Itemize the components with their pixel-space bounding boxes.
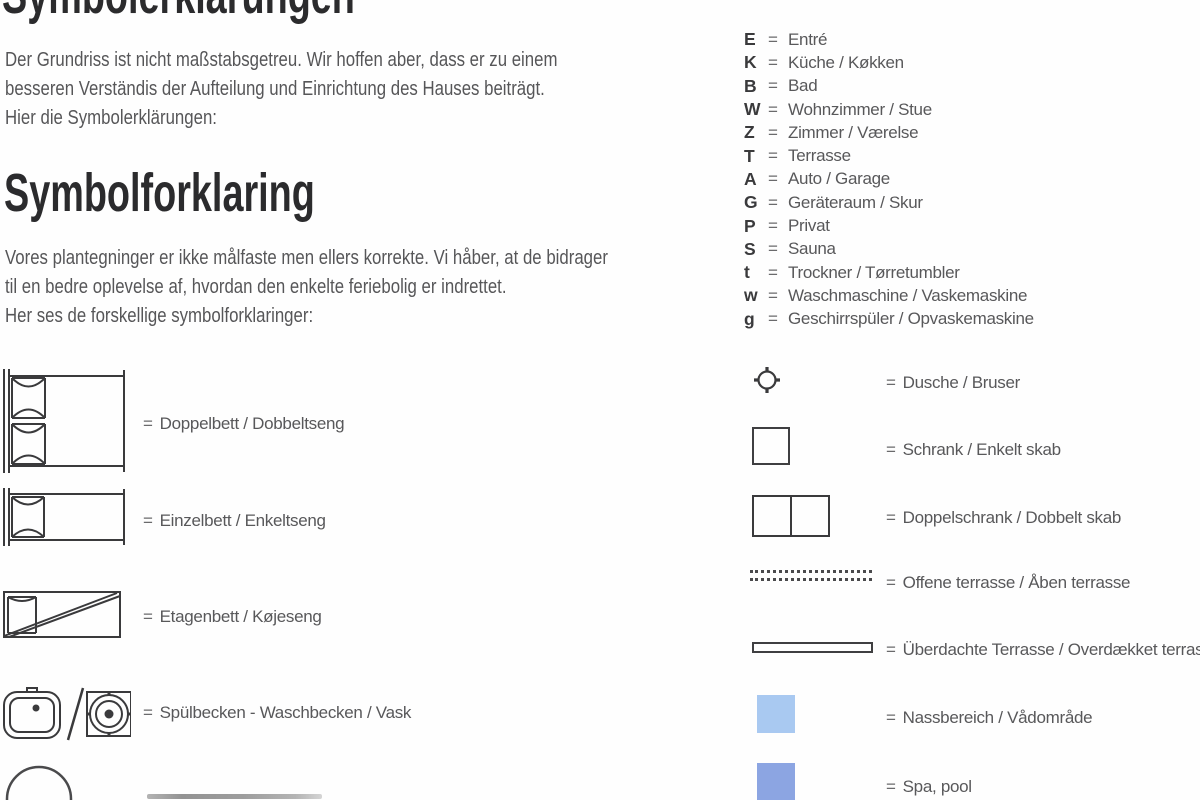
page-title-german: Symbolerklärungen xyxy=(2,0,355,22)
legend-value: Geräteraum / Skur xyxy=(788,193,923,213)
spa-pool-label: =Spa, pool xyxy=(886,777,972,797)
legend-key: g xyxy=(744,309,768,330)
legend-key: W xyxy=(744,99,768,120)
wet-area-icon xyxy=(757,695,795,733)
equals-sign: = xyxy=(143,511,153,530)
intro-german: Der Grundriss ist nicht maßstabsgetreu. … xyxy=(5,46,557,133)
letter-legend-row: A = Auto / Garage xyxy=(744,168,1034,191)
equals-sign: = xyxy=(886,373,896,392)
double-bed-icon xyxy=(2,368,130,474)
shower-label: =Dusche / Bruser xyxy=(886,373,1020,393)
equals-sign: = xyxy=(143,703,153,722)
letter-legend-row: G = Geräteraum / Skur xyxy=(744,191,1034,214)
equals-sign: = xyxy=(768,309,788,329)
equals-sign: = xyxy=(768,263,788,283)
double-bed-label: =Doppelbett / Dobbeltseng xyxy=(143,414,344,434)
open-terrace-label: =Offene terrasse / Åben terrasse xyxy=(886,573,1130,593)
letter-legend-row: t = Trockner / Tørretumbler xyxy=(744,261,1034,284)
sink-washbasin-label: =Spülbecken - Waschbecken / Vask xyxy=(143,703,411,723)
equals-sign: = xyxy=(886,508,896,527)
intro-german-line3: Hier die Symbolerklärungen: xyxy=(5,104,557,133)
equals-sign: = xyxy=(768,169,788,189)
single-cabinet-label: =Schrank / Enkelt skab xyxy=(886,440,1061,460)
equals-sign: = xyxy=(768,286,788,306)
legend-value: Entré xyxy=(788,30,827,50)
single-bed-label: =Einzelbett / Enkeltseng xyxy=(143,511,326,531)
equals-sign: = xyxy=(768,100,788,120)
equals-sign: = xyxy=(886,573,896,592)
legend-value: Waschmaschine / Vaskemaskine xyxy=(788,286,1027,306)
legend-value: Trockner / Tørretumbler xyxy=(788,263,960,283)
legend-value: Privat xyxy=(788,216,830,236)
legend-value: Zimmer / Værelse xyxy=(788,123,918,143)
legend-key: K xyxy=(744,52,768,73)
equals-sign: = xyxy=(768,216,788,236)
page-title-danish: Symbolforklaring xyxy=(4,166,315,220)
dotted-row xyxy=(750,570,872,573)
equals-sign: = xyxy=(768,193,788,213)
equals-sign: = xyxy=(768,76,788,96)
legend-key: Z xyxy=(744,122,768,143)
legend-key: S xyxy=(744,239,768,260)
intro-danish-line1: Vores plantegninger er ikke målfaste men… xyxy=(5,244,608,273)
cutoff-circle-icon xyxy=(4,762,76,800)
bunk-bed-icon xyxy=(3,588,121,638)
double-cabinet-icon xyxy=(752,495,830,537)
equals-sign: = xyxy=(768,30,788,50)
legend-value: Geschirrspüler / Opvaskemaskine xyxy=(788,309,1034,329)
legend-value: Sauna xyxy=(788,239,836,259)
legend-value: Bad xyxy=(788,76,817,96)
legend-key: P xyxy=(744,216,768,237)
equals-sign: = xyxy=(768,53,788,73)
shower-icon xyxy=(752,364,782,396)
intro-danish-line3: Her ses de forskellige symbolforklaringe… xyxy=(5,302,608,331)
cutoff-text-fragment xyxy=(147,794,322,799)
open-terrace-icon xyxy=(750,570,872,581)
legend-value: Küche / Køkken xyxy=(788,53,904,73)
equals-sign: = xyxy=(768,239,788,259)
spa-pool-icon xyxy=(757,763,795,800)
letter-legend-row: g = Geschirrspüler / Opvaskemaskine xyxy=(744,308,1034,331)
intro-german-line1: Der Grundriss ist nicht maßstabsgetreu. … xyxy=(5,46,557,75)
symbol-legend-page: Symbolerklärungen Der Grundriss ist nich… xyxy=(0,0,1200,800)
legend-key: B xyxy=(744,76,768,97)
equals-sign: = xyxy=(886,640,896,659)
dotted-row xyxy=(750,578,872,581)
legend-value: Auto / Garage xyxy=(788,169,890,189)
double-cabinet-label: =Doppelschrank / Dobbelt skab xyxy=(886,508,1121,528)
intro-german-line2: besseren Verständis der Aufteilung und E… xyxy=(5,75,557,104)
covered-terrace-icon xyxy=(752,642,873,653)
wet-area-label: =Nassbereich / Vådområde xyxy=(886,708,1092,728)
legend-value: Terrasse xyxy=(788,146,851,166)
legend-key: A xyxy=(744,169,768,190)
intro-danish: Vores plantegninger er ikke målfaste men… xyxy=(5,244,608,331)
legend-value: Wohnzimmer / Stue xyxy=(788,100,932,120)
covered-terrace-label: =Überdachte Terrasse / Overdækket terras… xyxy=(886,640,1200,660)
letter-legend: E = Entré K = Küche / Køkken B = Bad W =… xyxy=(744,28,1034,331)
equals-sign: = xyxy=(886,440,896,459)
legend-key: w xyxy=(744,285,768,306)
legend-key: E xyxy=(744,29,768,50)
equals-sign: = xyxy=(886,708,896,727)
letter-legend-row: E = Entré xyxy=(744,28,1034,51)
single-bed-icon xyxy=(2,488,130,546)
letter-legend-row: P = Privat xyxy=(744,214,1034,237)
letter-legend-row: K = Küche / Køkken xyxy=(744,51,1034,74)
legend-key: t xyxy=(744,262,768,283)
equals-sign: = xyxy=(768,123,788,143)
legend-key: G xyxy=(744,192,768,213)
letter-legend-row: W = Wohnzimmer / Stue xyxy=(744,98,1034,121)
letter-legend-row: w = Waschmaschine / Vaskemaskine xyxy=(744,284,1034,307)
equals-sign: = xyxy=(768,146,788,166)
letter-legend-row: Z = Zimmer / Værelse xyxy=(744,121,1034,144)
legend-key: T xyxy=(744,146,768,167)
equals-sign: = xyxy=(886,777,896,796)
bunk-bed-label: =Etagenbett / Køjeseng xyxy=(143,607,322,627)
intro-danish-line2: til en bedre oplevelse af, hvordan den e… xyxy=(5,273,608,302)
sink-washbasin-icon xyxy=(3,686,131,742)
single-cabinet-icon xyxy=(752,427,790,465)
letter-legend-row: S = Sauna xyxy=(744,238,1034,261)
letter-legend-row: B = Bad xyxy=(744,75,1034,98)
equals-sign: = xyxy=(143,414,153,433)
letter-legend-row: T = Terrasse xyxy=(744,144,1034,167)
equals-sign: = xyxy=(143,607,153,626)
